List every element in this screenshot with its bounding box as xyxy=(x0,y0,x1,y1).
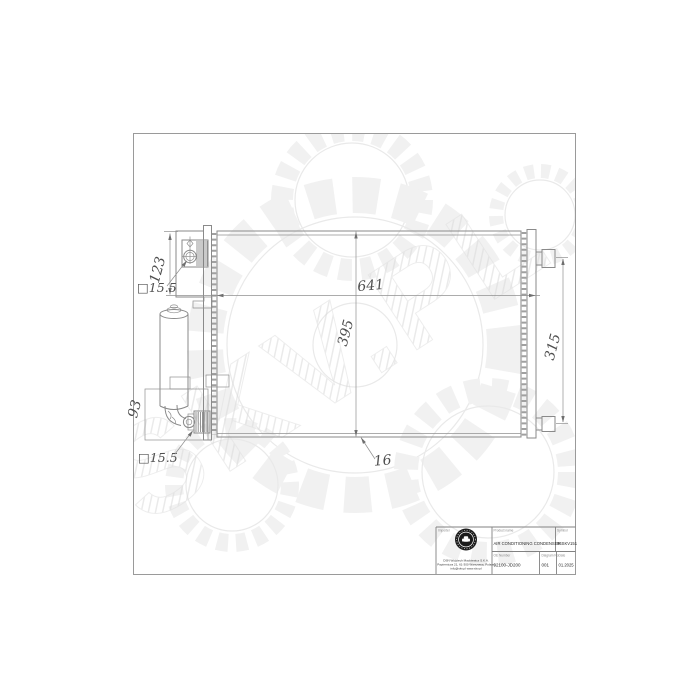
symbol-label: Symbol xyxy=(557,529,568,533)
dim-depth: 16 xyxy=(373,452,392,469)
oe-number-label: OE Number xyxy=(494,554,512,558)
brand-stamp-icon xyxy=(455,529,477,551)
symbol-value: 94SKV151 xyxy=(557,541,578,546)
diagram-no-label: Diagram No. xyxy=(542,554,560,558)
importer-label: Importer xyxy=(438,529,451,533)
dim-outlet-port: □15.5 xyxy=(138,450,178,465)
oe-number-value: 92100-JD200 xyxy=(494,563,522,568)
date-label: Date xyxy=(559,554,566,558)
technical-drawing-sheet: SKV.PL xyxy=(0,0,700,700)
date-value: 01.2025 xyxy=(559,563,575,568)
product-name-label: Product name xyxy=(494,529,514,533)
dim-inlet-port: □15.5 xyxy=(137,280,177,295)
company-line3: info@skv.pl www.skv.pl xyxy=(450,567,482,571)
product-name-value: AIR CONDITIONING CONDENSER xyxy=(494,541,561,546)
dim-overall-width: 641 xyxy=(357,277,385,295)
diagram-no-value: 001 xyxy=(542,563,550,568)
